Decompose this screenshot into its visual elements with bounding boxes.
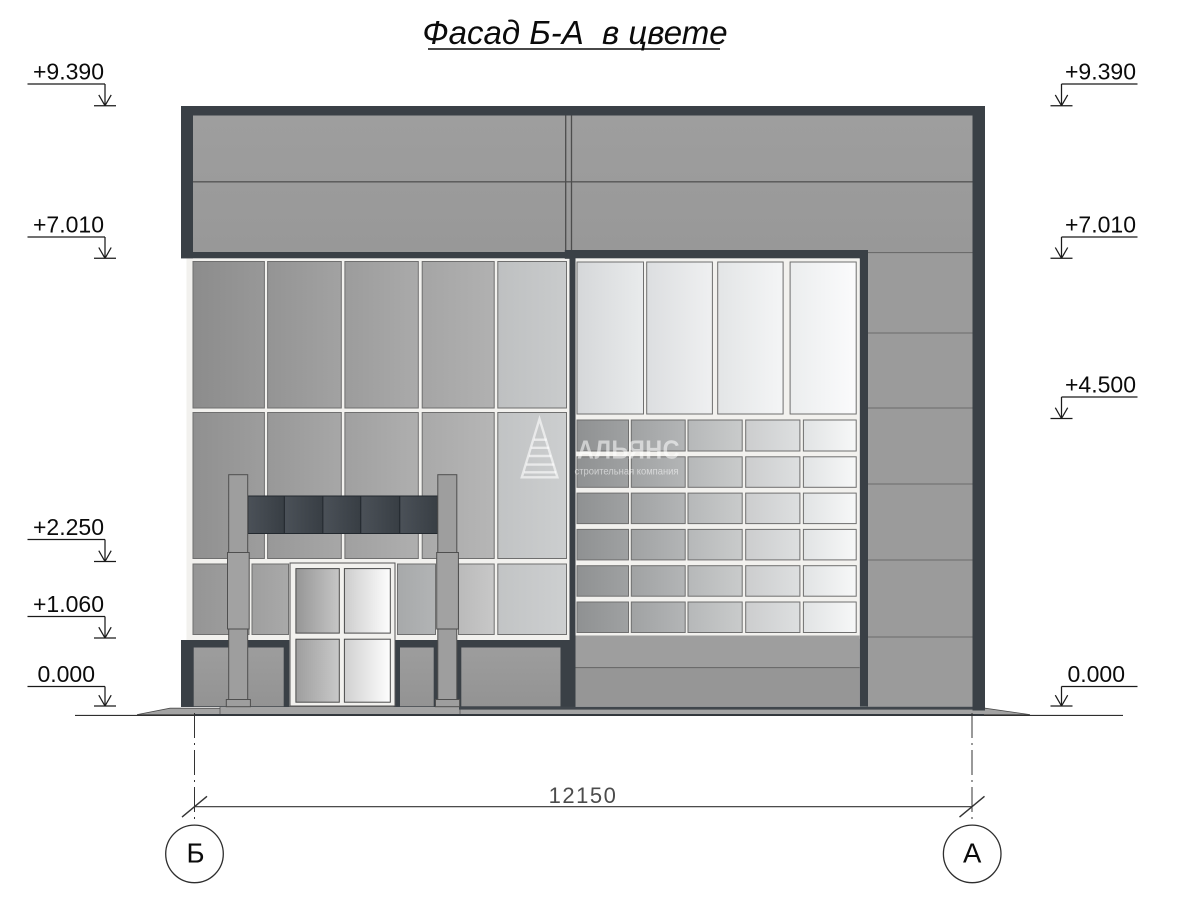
svg-text:А: А — [963, 838, 982, 869]
svg-text:Б: Б — [186, 838, 204, 869]
svg-text:строительная компания: строительная компания — [575, 467, 679, 478]
svg-text:12150: 12150 — [549, 783, 618, 808]
svg-text:0.000: 0.000 — [1067, 661, 1125, 687]
svg-text:+1.060: +1.060 — [33, 591, 104, 617]
svg-text:+7.010: +7.010 — [1065, 212, 1136, 238]
svg-text:+7.010: +7.010 — [33, 212, 104, 238]
svg-text:Фасад Б-А в цвете: Фасад Б-А в цвете — [422, 14, 727, 51]
svg-text:+9.390: +9.390 — [1065, 59, 1136, 85]
svg-text:0.000: 0.000 — [37, 661, 95, 687]
svg-text:+9.390: +9.390 — [33, 59, 104, 85]
svg-text:АЛЬЯНС: АЛЬЯНС — [577, 435, 680, 465]
svg-text:+2.250: +2.250 — [33, 514, 104, 540]
svg-text:+4.500: +4.500 — [1065, 372, 1136, 398]
